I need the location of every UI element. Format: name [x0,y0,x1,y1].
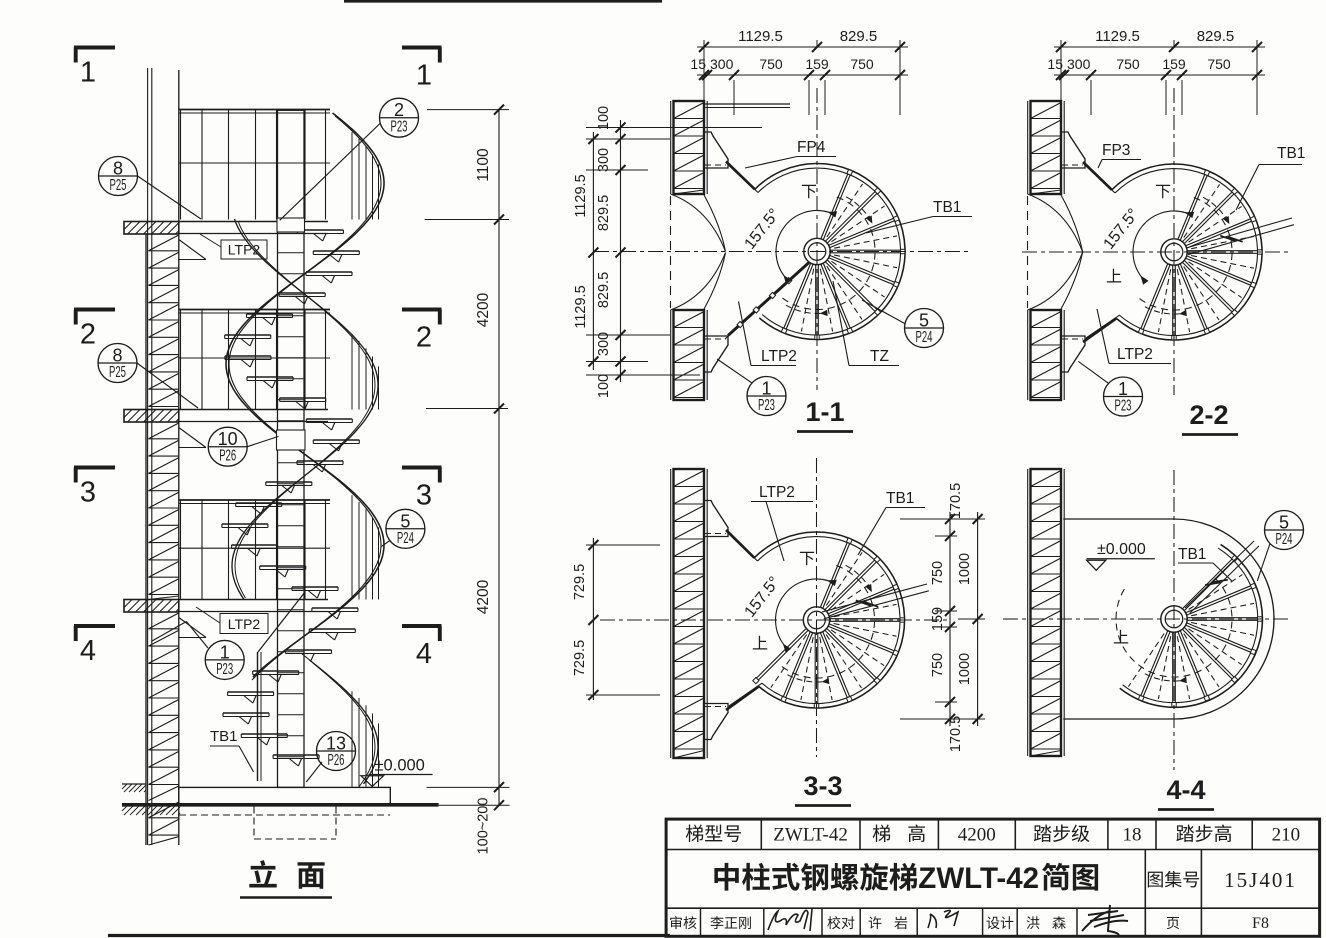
svg-text:LTP2: LTP2 [759,484,795,501]
svg-text:P25: P25 [109,364,126,381]
svg-text:4-4: 4-4 [1166,775,1205,805]
svg-text:4200: 4200 [958,825,996,846]
svg-text:170.5: 170.5 [948,483,964,519]
svg-text:100~200: 100~200 [476,798,492,855]
svg-text:750: 750 [1207,56,1231,72]
svg-text:300: 300 [596,332,612,356]
svg-text:5: 5 [919,311,929,331]
svg-text:2: 2 [416,322,432,354]
svg-text:4200: 4200 [475,292,492,327]
svg-text:1: 1 [416,60,432,92]
svg-text:F8: F8 [1252,915,1269,932]
svg-text:8: 8 [112,346,122,366]
svg-text:8: 8 [113,159,123,179]
svg-text:P24: P24 [397,530,414,547]
svg-text:750: 750 [759,56,783,72]
svg-text:5: 5 [400,511,410,531]
svg-text:1000: 1000 [957,553,973,585]
svg-text:1129.5: 1129.5 [573,285,589,328]
svg-text:15J401: 15J401 [1224,868,1297,892]
svg-text:2: 2 [394,100,404,120]
svg-text:100: 100 [596,374,612,398]
svg-text:1129.5: 1129.5 [1095,28,1140,45]
svg-text:1: 1 [220,642,230,662]
svg-text:P23: P23 [1115,398,1132,415]
svg-text:P23: P23 [758,397,775,414]
svg-text:170.5: 170.5 [948,716,964,752]
svg-text:3: 3 [80,477,96,509]
svg-text:3-3: 3-3 [803,771,842,801]
svg-text:729.5: 729.5 [572,564,588,600]
svg-text:300: 300 [1067,56,1091,72]
svg-text:750: 750 [930,561,946,585]
svg-text:TB1: TB1 [1178,546,1206,563]
svg-text:P23: P23 [391,119,408,136]
svg-text:±0.000: ±0.000 [1097,541,1146,558]
svg-text:300: 300 [710,56,734,72]
svg-text:P25: P25 [110,177,127,194]
svg-text:1: 1 [1118,379,1128,399]
svg-text:TB1: TB1 [886,490,914,507]
svg-text:ZWLT-42: ZWLT-42 [918,862,1039,895]
svg-text:10: 10 [218,429,238,449]
svg-text:750: 750 [1116,56,1140,72]
svg-text:13: 13 [326,734,346,754]
svg-text:210: 210 [1272,825,1301,846]
svg-text:FP3: FP3 [1102,142,1130,159]
svg-text:±0.000: ±0.000 [375,757,425,775]
svg-text:P26: P26 [219,448,236,465]
svg-text:P24: P24 [1276,531,1293,548]
svg-text:1: 1 [761,379,771,399]
svg-text:FP4: FP4 [797,139,826,156]
svg-text:LTP2: LTP2 [761,348,797,365]
svg-text:3: 3 [416,480,432,512]
svg-text:ZWLT-42: ZWLT-42 [773,825,848,846]
svg-text:159: 159 [805,56,829,72]
svg-text:18: 18 [1123,825,1142,846]
svg-text:5: 5 [1279,513,1289,533]
svg-text:729.5: 729.5 [572,640,588,676]
svg-text:P26: P26 [328,752,345,769]
svg-text:2-2: 2-2 [1189,400,1228,430]
svg-text:829.5: 829.5 [840,28,878,45]
svg-text:TB1: TB1 [210,728,238,745]
svg-text:TB1: TB1 [1277,145,1305,162]
svg-text:159: 159 [1162,56,1186,72]
svg-text:829.5: 829.5 [1197,28,1235,45]
svg-text:LTP2: LTP2 [1117,346,1153,363]
svg-text:1100: 1100 [475,148,492,182]
svg-text:100: 100 [596,106,612,130]
svg-text:4200: 4200 [475,579,492,614]
svg-text:300: 300 [596,148,612,172]
svg-text:1129.5: 1129.5 [738,28,783,45]
svg-text:1129.5: 1129.5 [573,174,589,217]
svg-text:TB1: TB1 [933,199,961,216]
svg-text:750: 750 [930,653,946,677]
svg-text:1000: 1000 [957,653,973,685]
svg-text:4: 4 [416,638,432,670]
svg-text:2: 2 [80,319,96,351]
svg-text:TZ: TZ [870,348,889,365]
svg-text:750: 750 [850,56,874,72]
svg-text:LTP2: LTP2 [228,616,261,632]
svg-text:4: 4 [80,635,96,667]
svg-text:829.5: 829.5 [596,272,612,308]
svg-text:829.5: 829.5 [596,195,612,231]
svg-text:P24: P24 [916,329,933,346]
svg-text:1-1: 1-1 [805,397,844,427]
svg-text:P23: P23 [216,661,233,678]
svg-text:1: 1 [80,57,96,89]
